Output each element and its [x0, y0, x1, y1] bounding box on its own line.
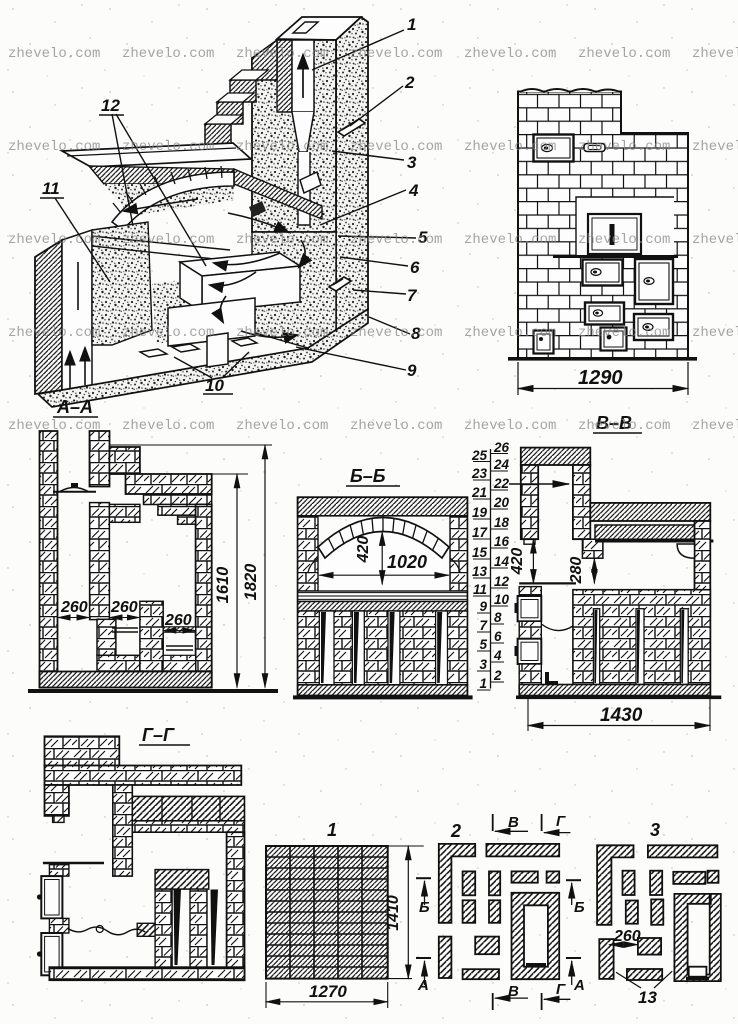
svg-text:1270: 1270	[309, 982, 347, 1001]
svg-text:Б–Б: Б–Б	[350, 466, 386, 486]
svg-text:zhevelo.com: zhevelo.com	[578, 418, 670, 434]
svg-text:420: 420	[509, 548, 526, 576]
svg-text:25: 25	[471, 448, 488, 463]
svg-text:zhevelo.com: zhevelo.com	[350, 139, 442, 155]
svg-text:zhevelo.com: zhevelo.com	[350, 46, 442, 62]
svg-text:zhevelo.com: zhevelo.com	[8, 46, 100, 62]
svg-text:9: 9	[479, 599, 487, 614]
svg-text:2: 2	[404, 73, 415, 92]
svg-text:11: 11	[473, 582, 487, 597]
svg-text:22: 22	[493, 476, 510, 491]
svg-text:19: 19	[472, 505, 488, 520]
svg-text:13: 13	[472, 564, 488, 579]
svg-text:zhevelo.com: zhevelo.com	[578, 325, 670, 341]
svg-text:26: 26	[493, 440, 510, 455]
svg-text:7: 7	[407, 286, 418, 305]
svg-text:zhevelo.com: zhevelo.com	[122, 418, 214, 434]
svg-text:zhevelo.com: zhevelo.com	[350, 325, 442, 341]
svg-text:Б: Б	[419, 899, 430, 916]
svg-text:zhevelo.com: zhevelo.com	[236, 232, 328, 248]
svg-text:zhevelo.com: zhevelo.com	[464, 418, 556, 434]
svg-text:В: В	[508, 983, 519, 1000]
svg-text:zhevelo.com: zhevelo.com	[8, 418, 100, 434]
svg-text:260: 260	[110, 599, 138, 616]
svg-text:21: 21	[471, 485, 487, 500]
svg-text:1: 1	[479, 676, 487, 691]
svg-text:1410: 1410	[385, 895, 402, 931]
svg-text:1: 1	[327, 820, 337, 840]
svg-text:4: 4	[408, 181, 419, 200]
svg-text:3: 3	[407, 153, 417, 172]
svg-text:В: В	[508, 814, 519, 831]
svg-text:А: А	[573, 977, 585, 994]
svg-text:11: 11	[42, 179, 60, 198]
svg-text:6: 6	[494, 629, 502, 644]
svg-text:23: 23	[471, 466, 488, 481]
svg-text:zhevelo.com: zhevelo.com	[692, 418, 738, 434]
svg-text:1020: 1020	[387, 552, 427, 572]
svg-text:10: 10	[494, 592, 510, 607]
svg-text:zhevelo.com: zhevelo.com	[350, 418, 442, 434]
svg-text:А–А: А–А	[56, 397, 93, 417]
svg-text:1430: 1430	[600, 705, 643, 726]
svg-text:20: 20	[493, 495, 510, 510]
svg-text:280: 280	[568, 557, 585, 585]
svg-text:13: 13	[638, 988, 657, 1007]
svg-text:24: 24	[493, 457, 510, 472]
svg-text:zhevelo.com: zhevelo.com	[692, 232, 738, 248]
svg-text:9: 9	[407, 361, 417, 380]
svg-text:zhevelo.com: zhevelo.com	[122, 325, 214, 341]
svg-text:zhevelo.com: zhevelo.com	[578, 139, 670, 155]
svg-text:zhevelo.com: zhevelo.com	[464, 232, 556, 248]
svg-text:260: 260	[613, 928, 641, 945]
svg-text:420: 420	[355, 536, 372, 564]
svg-text:zhevelo.com: zhevelo.com	[122, 139, 214, 155]
svg-text:12: 12	[101, 96, 120, 115]
svg-text:zhevelo.com: zhevelo.com	[578, 46, 670, 62]
svg-text:zhevelo.com: zhevelo.com	[122, 232, 214, 248]
svg-text:Г: Г	[556, 813, 566, 830]
svg-text:2: 2	[450, 821, 461, 841]
svg-text:17: 17	[472, 525, 489, 540]
svg-text:zhevelo.com: zhevelo.com	[464, 139, 556, 155]
svg-text:2: 2	[493, 668, 502, 683]
svg-text:16: 16	[494, 534, 510, 549]
svg-text:6: 6	[410, 258, 420, 277]
svg-text:260: 260	[164, 612, 192, 629]
svg-text:4: 4	[493, 648, 502, 663]
svg-text:5: 5	[479, 637, 487, 652]
svg-text:18: 18	[494, 515, 510, 530]
svg-text:zhevelo.com: zhevelo.com	[8, 232, 100, 248]
svg-text:zhevelo.com: zhevelo.com	[122, 46, 214, 62]
svg-text:zhevelo.com: zhevelo.com	[8, 139, 100, 155]
svg-text:1290: 1290	[578, 367, 623, 389]
svg-text:10: 10	[205, 376, 224, 395]
svg-text:zhevelo.com: zhevelo.com	[236, 139, 328, 155]
svg-text:zhevelo.com: zhevelo.com	[236, 418, 328, 434]
svg-text:zhevelo.com: zhevelo.com	[236, 46, 328, 62]
svg-text:260: 260	[60, 599, 88, 616]
svg-text:Г–Г: Г–Г	[142, 725, 175, 745]
svg-text:zhevelo.com: zhevelo.com	[350, 232, 442, 248]
svg-text:12: 12	[494, 574, 510, 589]
svg-text:1: 1	[407, 15, 416, 34]
svg-text:15: 15	[472, 545, 488, 560]
svg-text:zhevelo.com: zhevelo.com	[464, 46, 556, 62]
svg-text:3: 3	[479, 657, 487, 672]
svg-text:zhevelo.com: zhevelo.com	[464, 325, 556, 341]
svg-text:8: 8	[494, 610, 502, 625]
svg-text:Б: Б	[574, 899, 585, 916]
svg-text:zhevelo.com: zhevelo.com	[8, 325, 100, 341]
svg-text:А: А	[417, 977, 429, 994]
svg-text:zhevelo.com: zhevelo.com	[692, 46, 738, 62]
svg-text:zhevelo.com: zhevelo.com	[578, 232, 670, 248]
svg-text:zhevelo.com: zhevelo.com	[236, 325, 328, 341]
svg-text:zhevelo.com: zhevelo.com	[692, 139, 738, 155]
svg-text:1820: 1820	[242, 563, 260, 601]
svg-text:14: 14	[494, 554, 510, 569]
svg-text:3: 3	[650, 820, 660, 840]
svg-text:Г: Г	[556, 981, 566, 998]
svg-text:1610: 1610	[214, 566, 232, 604]
svg-text:zhevelo.com: zhevelo.com	[692, 325, 738, 341]
